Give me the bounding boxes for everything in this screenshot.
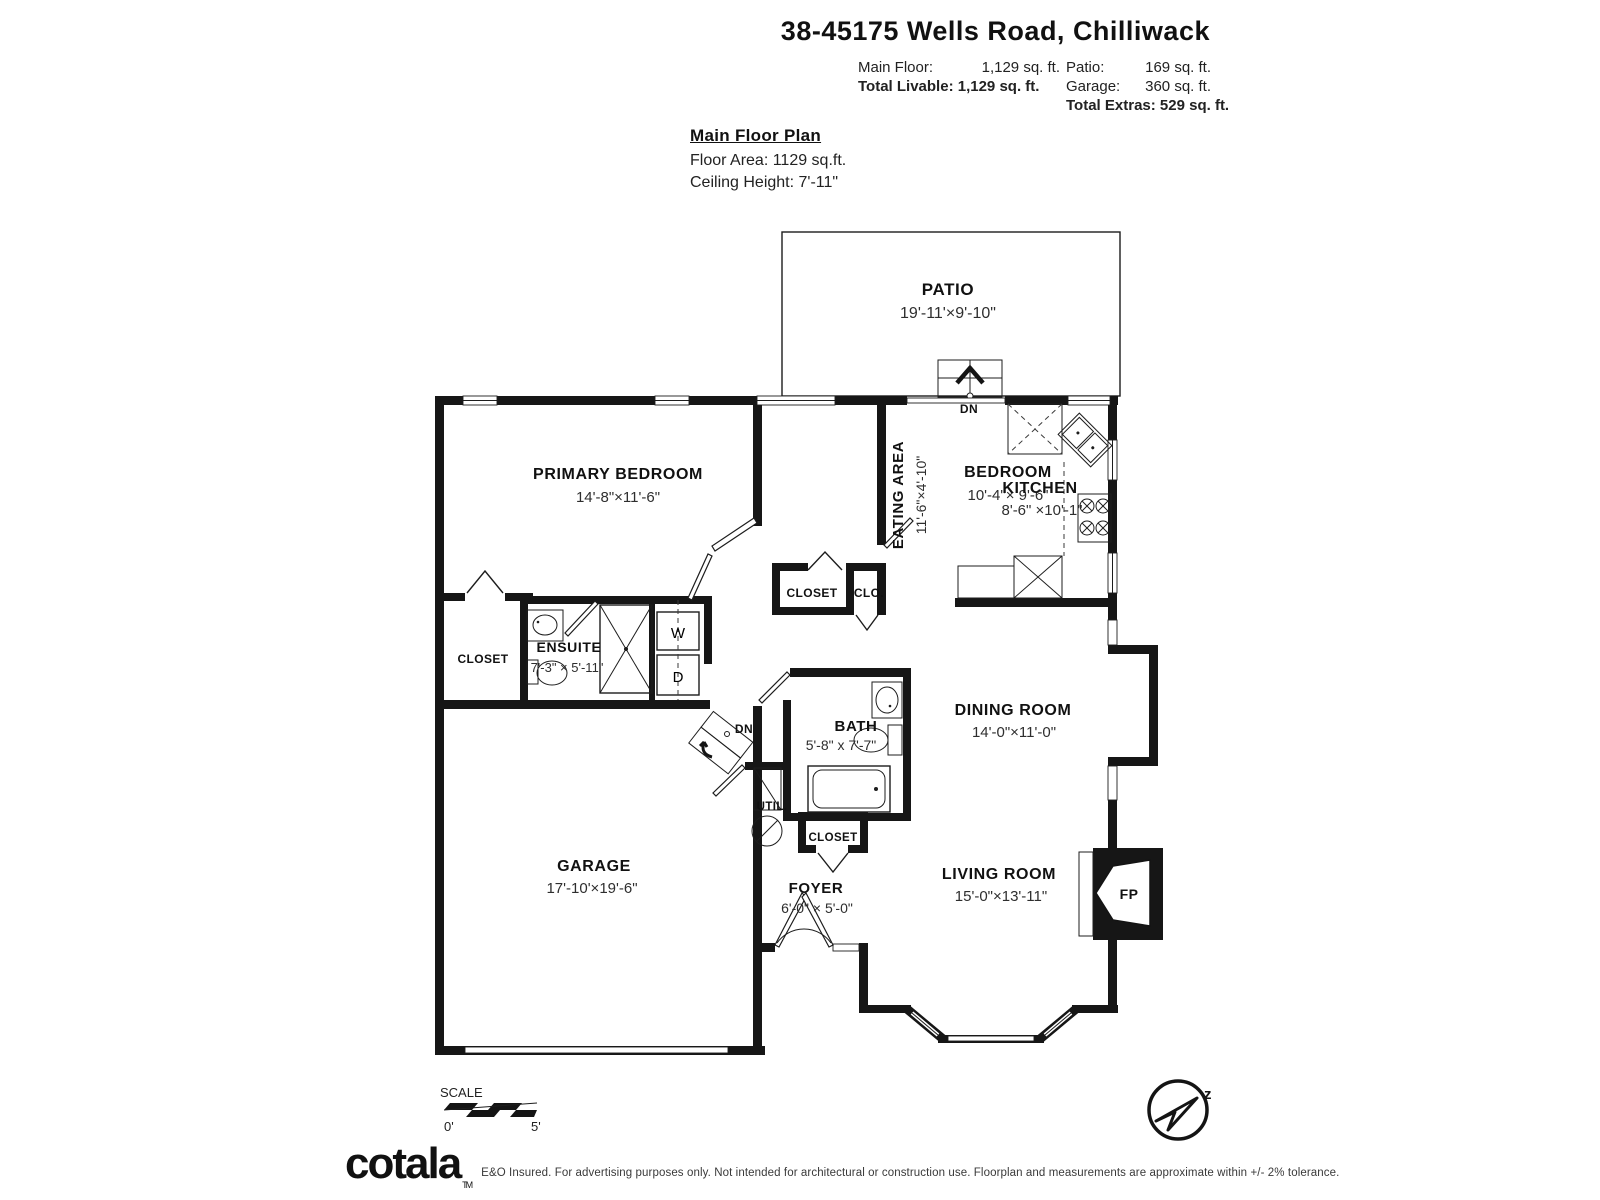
room-foyer: FOYER <box>789 880 844 897</box>
room-ensuite: ENSUITE <box>537 639 602 655</box>
room-primary-bedroom-dims: 14'-8"×11'-6" <box>576 489 660 506</box>
floorplan-page: 38-45175 Wells Road, Chilliwack Main Flo… <box>0 0 1600 1200</box>
room-garage: GARAGE <box>557 858 631 875</box>
room-living: LIVING ROOM <box>942 866 1056 883</box>
dryer-label: D <box>673 669 684 686</box>
closet-foyer-label: CLOSET <box>808 832 857 844</box>
footer: cotalaTM E&O Insured. For advertising pu… <box>345 1142 1339 1197</box>
room-bath: BATH <box>835 718 878 735</box>
north-letter: z <box>1204 1086 1212 1103</box>
room-kitchen: KITCHEN <box>1002 480 1077 497</box>
scale-start: 0' <box>444 1119 454 1134</box>
disclaimer-text: E&O Insured. For advertising purposes on… <box>481 1167 1339 1179</box>
room-bath-dims: 5'-8" x 7'-7" <box>806 737 877 753</box>
room-bedroom: BEDROOM <box>964 464 1052 481</box>
closet-small-label: CLO. <box>854 586 884 600</box>
cotala-logo-text: cotala <box>345 1139 460 1188</box>
room-garage-dims: 17'-10'×19'-6" <box>546 880 637 897</box>
closet-primary-label: CLOSET <box>457 652 508 666</box>
room-dining: DINING ROOM <box>955 702 1072 719</box>
bay-window <box>907 1009 1076 1043</box>
basement-stairs: DN <box>689 711 753 773</box>
stove-burners-icon <box>1080 499 1110 535</box>
washer-label: W <box>671 625 686 642</box>
util-label: UTIL. <box>757 801 788 813</box>
dn-patio-label: DN <box>960 402 978 416</box>
room-eating-area-dims: 11'-6"×4'-10" <box>913 456 929 534</box>
cotala-logo-tm: TM <box>462 1180 471 1190</box>
room-primary-bedroom: PRIMARY BEDROOM <box>533 466 703 483</box>
scale-bar: SCALE 0' 5' <box>440 1085 541 1134</box>
closet-bedroom-label: CLOSET <box>786 586 837 600</box>
room-patio: PATIO <box>922 280 974 299</box>
stair-down-arrow-icon <box>700 742 712 757</box>
room-kitchen-dims: 8'-6" ×10'-1" <box>1001 502 1082 519</box>
room-ensuite-dims: 7'-3" × 5'-11" <box>531 660 604 675</box>
room-eating-area: EATING AREA <box>890 441 907 549</box>
scale-end: 5' <box>531 1119 541 1134</box>
compass-icon: z <box>1149 1081 1212 1139</box>
room-patio-dims: 19'-11'×9'-10" <box>900 305 996 322</box>
room-dining-dims: 14'-0"×11'-0" <box>972 724 1056 741</box>
room-living-dims: 15'-0"×13'-11" <box>955 888 1047 905</box>
scale-label: SCALE <box>440 1085 483 1100</box>
washer-dryer: W D <box>657 600 699 700</box>
cotala-logo: cotalaTM <box>345 1142 469 1197</box>
dn-stairs-label: DN <box>735 722 753 736</box>
fireplace: FP <box>1079 848 1163 940</box>
fireplace-label: FP <box>1120 886 1139 902</box>
room-foyer-dims: 6'-0" × 5'-0" <box>781 900 853 916</box>
floorplan-drawing: W D DN <box>0 0 1600 1200</box>
